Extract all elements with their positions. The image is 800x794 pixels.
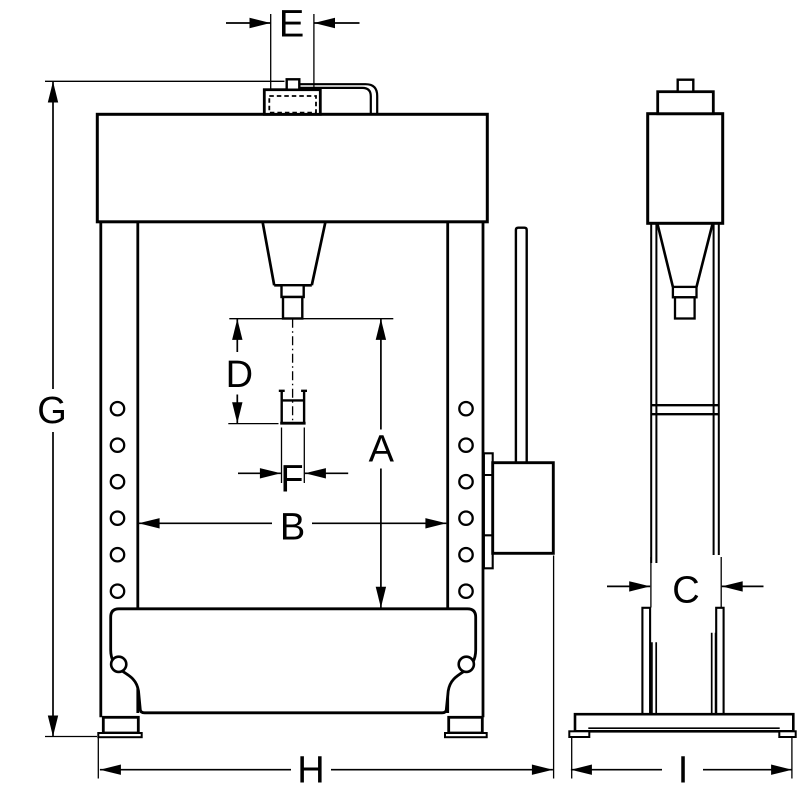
- side-cylinder-cap: [658, 92, 714, 114]
- front-feet: [98, 717, 486, 737]
- arrow-d-down: [232, 402, 242, 423]
- side-cylinder-cone: [658, 224, 713, 287]
- cylinder-cap: [264, 90, 320, 115]
- dim-label-g: G: [37, 390, 67, 432]
- arrow-a-down: [376, 587, 386, 608]
- arrow-b-left: [139, 518, 160, 528]
- arrow-i-right: [771, 765, 792, 775]
- side-column-rear: [714, 223, 719, 555]
- pump-body: [493, 463, 554, 554]
- hole: [111, 402, 124, 415]
- hole: [459, 439, 472, 452]
- arrow-c-right: [722, 581, 743, 591]
- hole: [459, 402, 472, 415]
- arrow-f-left: [260, 468, 281, 478]
- dim-label-h: H: [297, 750, 324, 792]
- arrow-g-down: [48, 716, 58, 737]
- side-filler-plug: [678, 80, 694, 92]
- side-columns: [651, 223, 719, 563]
- dim-label-e: E: [279, 4, 304, 46]
- arrow-c-left: [629, 581, 650, 591]
- hole: [111, 439, 124, 452]
- pump-unit: [484, 228, 553, 569]
- arrow-i-left: [571, 765, 592, 775]
- arrow-h-left: [100, 765, 121, 775]
- hole: [459, 475, 472, 488]
- side-ram-nose: [675, 297, 695, 318]
- left-foot: [103, 717, 138, 733]
- front-view: [97, 79, 553, 737]
- right-foot-base: [445, 733, 487, 737]
- table-pin-right: [459, 657, 474, 672]
- ram-collar: [282, 285, 304, 297]
- press-dimension-diagram: E G D A F B C H I: [0, 0, 800, 794]
- dim-label-b: B: [280, 507, 305, 549]
- side-column-lower-edges: [652, 633, 716, 715]
- side-cylinder-body: [648, 114, 723, 224]
- dim-label-i: I: [678, 750, 689, 792]
- side-column-front: [651, 223, 656, 563]
- arrow-b-right: [425, 518, 446, 528]
- dim-label-a: A: [369, 429, 395, 471]
- side-ram-collar: [673, 287, 697, 297]
- table-pin-left: [111, 657, 126, 672]
- hole: [111, 585, 124, 598]
- pump-handle-lever: [516, 228, 527, 463]
- ram-nose: [283, 297, 302, 319]
- arrow-a-up: [376, 319, 386, 340]
- hole: [111, 475, 124, 488]
- hole: [111, 548, 124, 561]
- side-table-plate-front: [642, 608, 650, 714]
- arrow-e-left: [250, 18, 271, 28]
- arrow-d-up: [232, 319, 242, 340]
- right-foot: [449, 717, 483, 733]
- arrow-f-right: [305, 468, 326, 478]
- hole: [111, 512, 124, 525]
- hole: [459, 548, 472, 561]
- dim-label-c: C: [672, 570, 699, 612]
- arrow-e-right: [314, 18, 335, 28]
- side-base-foot-left: [569, 731, 589, 737]
- work-table: [111, 609, 476, 713]
- left-foot-base: [98, 733, 141, 737]
- hole: [459, 512, 472, 525]
- dim-label-d: D: [226, 354, 253, 396]
- diagram-canvas: E G D A F B C H I: [0, 0, 800, 794]
- dim-label-f: F: [280, 459, 303, 501]
- side-table-plate-rear: [716, 608, 723, 714]
- top-crossbeam: [97, 114, 487, 222]
- cylinder-cone: [263, 223, 326, 286]
- hole: [459, 585, 472, 598]
- filler-plug: [287, 79, 300, 89]
- arrow-g-up: [48, 82, 58, 103]
- arrow-h-right: [532, 765, 553, 775]
- side-view: [569, 80, 795, 737]
- side-cross-member: [652, 405, 719, 414]
- side-base-foot-right: [779, 731, 795, 737]
- top-assembly: [264, 79, 377, 114]
